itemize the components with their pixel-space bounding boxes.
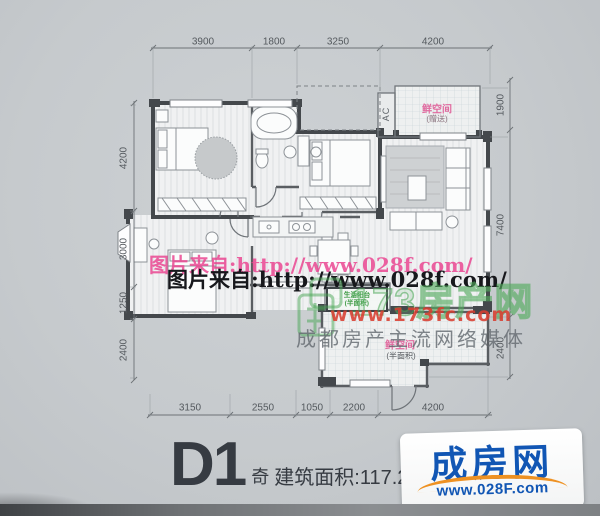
unit-code: D1 [170,436,245,493]
floor-parity: 奇 [251,463,269,489]
chengfang-logo-badge: 成房网 www.028F.com [400,428,584,513]
built-area: 建筑面积:117.21 [274,461,419,490]
dim-top-4: 4200 [422,37,444,48]
dim-left-1: 4200 [119,147,130,169]
dim-bottom-2: 2550 [252,403,274,414]
dim-top-1: 3900 [192,37,214,48]
void-dashed-outline [297,86,380,130]
tv-console [381,156,386,202]
dim-left-4: 2400 [119,339,130,361]
ac-label: AC [381,107,391,122]
dim-right-2: 7400 [496,214,507,236]
logo-url: www.028F.com [436,479,549,500]
master-wardrobe [158,198,246,211]
dim-bottom-4: 2200 [343,403,365,414]
dim-left-2: 3000 [119,238,130,260]
dim-right-1: 1900 [496,94,507,116]
dim-top-3: 3250 [327,37,349,48]
dim-bottom-5: 4200 [422,403,444,414]
dim-bottom-3: 1050 [301,403,323,414]
coffee-table [408,176,426,200]
unit-title: D1 奇 建筑面积:117.21 [170,436,420,493]
gift-space-top-note: (赠送) [426,114,447,125]
dim-top-2: 1800 [263,37,285,48]
bathtub [251,107,297,139]
round-rug [195,137,237,179]
scan-bottom-edge [0,504,600,516]
gift-space-bottom-note: (半面积) [386,351,415,362]
basin [284,146,296,158]
dim-left-3: 1250 [119,292,130,314]
scanned-floorplan-page: 3900 1800 3250 4200 4200 3000 1250 2400 … [0,0,600,516]
entry-door [392,386,416,410]
dim-bottom-1: 3150 [179,403,201,414]
watermark-slogan: 成都房产主流网络媒体 [296,323,526,352]
